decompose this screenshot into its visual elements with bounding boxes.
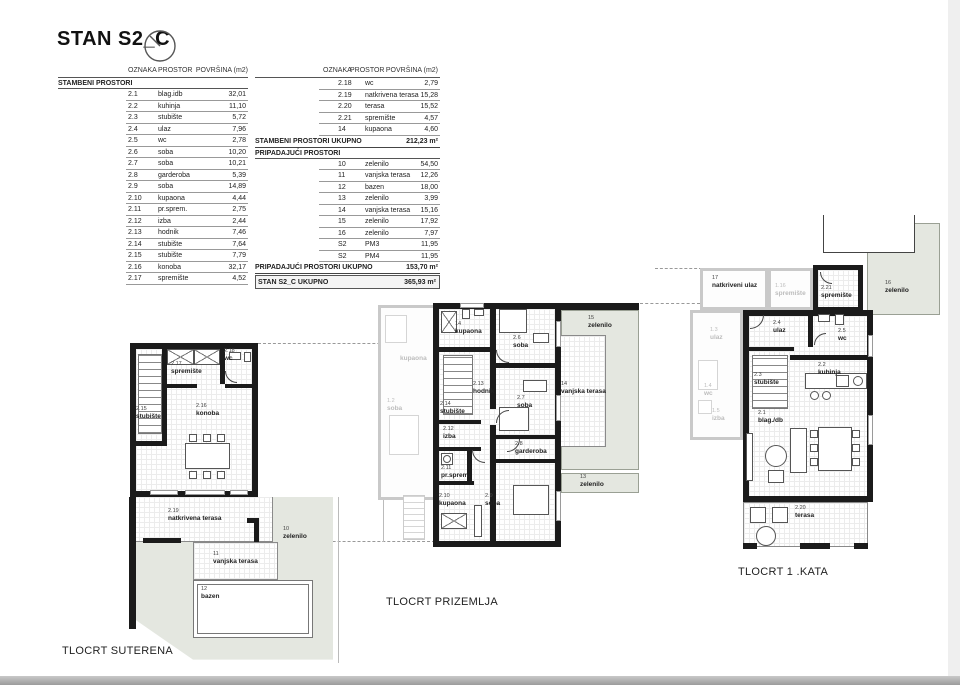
col-povrsina: POVRŠINA (m2) xyxy=(196,67,248,74)
bed xyxy=(499,309,527,333)
room-label-faded-ulaz: 1.3 ulaz xyxy=(710,327,723,343)
cell-povrsina: 5,72 xyxy=(232,112,246,124)
exterior-wall xyxy=(129,497,136,629)
cell-oznaka: S2 xyxy=(338,251,347,263)
room-label-blagdb: 2.1 blag./db xyxy=(758,410,783,426)
cell-oznaka: 2.17 xyxy=(128,273,142,285)
window xyxy=(868,415,873,445)
table-row: 2.1blag.idb32,01 xyxy=(126,89,248,101)
cell-prostor: PM4 xyxy=(365,251,379,263)
cell-prostor: PM3 xyxy=(365,239,379,251)
room-label-faded-soba: 1.2 soba xyxy=(387,398,402,414)
cell-povrsina: 4,60 xyxy=(424,124,438,136)
table-row: 14vanjska terasa15,16 xyxy=(319,205,440,217)
table-row: 2.18wc2,79 xyxy=(319,78,440,90)
room-label-soba-26: 2.6 soba xyxy=(513,335,528,351)
floorplan-sheet: STAN S2_C OZNAKA PROSTOR POVRŠINA (m2) S… xyxy=(0,0,960,685)
room-label-stubiste: 2.14 stubište xyxy=(440,401,465,417)
cell-oznaka: 2.13 xyxy=(128,227,142,239)
cell-prostor: zelenilo xyxy=(365,193,389,205)
faded-fixture xyxy=(385,315,407,343)
pripadajuci-total-row: PRIPADAJUĆI PROSTORI UKUPNO 153,70 m² xyxy=(255,262,440,274)
table-row: S2PM411,95 xyxy=(319,251,440,263)
cell-prostor: blag.idb xyxy=(158,89,183,101)
floor-plan-prizemlja: 14 kupaona 2.6 soba 2.13 hodnik 2.14 stu… xyxy=(375,295,645,605)
floor-plan-suterena: 2.15 stubište 2.17 spremište 2.18 wc 2.1… xyxy=(125,340,350,672)
faded-staircase xyxy=(403,495,425,540)
col-prostor: PROSTOR xyxy=(158,67,193,74)
cell-prostor: garderoba xyxy=(158,170,190,182)
interior-wall xyxy=(167,384,197,388)
cell-prostor: kupaona xyxy=(158,193,185,205)
interior-wall xyxy=(496,459,555,463)
chair xyxy=(852,458,860,466)
cell-povrsina: 2,79 xyxy=(424,78,438,90)
terrace-table xyxy=(772,507,788,523)
room-label-faded-kupaona: kupaona xyxy=(400,355,427,363)
table-row: 2.11pr.sprem.2,75 xyxy=(126,204,248,216)
grand-total-value: 365,93 m² xyxy=(404,276,436,289)
cell-oznaka: 2.9 xyxy=(128,181,138,193)
cell-oznaka: 12 xyxy=(338,182,346,194)
col-prostor: PROSTOR xyxy=(350,67,385,74)
cell-povrsina: 32,17 xyxy=(228,262,246,274)
cell-oznaka: 2.20 xyxy=(338,101,352,113)
col-povrsina: POVRŠINA (m2) xyxy=(386,67,438,74)
cell-povrsina: 10,21 xyxy=(228,158,246,170)
cell-oznaka: 2.21 xyxy=(338,113,352,125)
cell-oznaka: 14 xyxy=(338,205,346,217)
interior-wall xyxy=(808,315,813,347)
cell-povrsina: 5,39 xyxy=(232,170,246,182)
table-header: OZNAKA PROSTOR POVRŠINA (m2) xyxy=(58,64,248,78)
cell-oznaka: 2.4 xyxy=(128,124,138,136)
cell-povrsina: 54,50 xyxy=(420,159,438,171)
toilet xyxy=(835,314,844,325)
room-table-right: OZNAKA PROSTOR POVRŠINA (m2) 2.18wc2,792… xyxy=(255,64,440,289)
cell-prostor: vanjska terasa xyxy=(365,170,410,182)
window xyxy=(230,490,248,495)
cell-prostor: konoba xyxy=(158,262,181,274)
cell-povrsina: 7,97 xyxy=(424,228,438,240)
stool xyxy=(822,391,831,400)
staircase xyxy=(138,354,162,434)
room-label-kupaona-210: 2.10 kupaona xyxy=(439,493,466,509)
room-label-bazen: 12 bazen xyxy=(201,586,219,602)
cell-povrsina: 12,26 xyxy=(420,170,438,182)
room-label-wc: 2.18 wc xyxy=(224,348,235,364)
faded-fixture xyxy=(698,400,712,414)
table-row: 2.21spremište4,57 xyxy=(319,113,440,125)
sink xyxy=(818,314,830,322)
plan-title-suterena: TLOCRT SUTERENA xyxy=(62,645,173,657)
cell-prostor: pr.sprem. xyxy=(158,204,187,216)
interior-wall xyxy=(496,435,555,439)
chair xyxy=(189,434,197,442)
total-label: PRIPADAJUĆI PROSTORI UKUPNO xyxy=(255,264,373,271)
cell-oznaka: 2.1 xyxy=(128,89,138,101)
coffee-table xyxy=(765,445,787,467)
plan-title-prizemlja: TLOCRT PRIZEMLJA xyxy=(386,596,498,608)
room-label-soba-29: 2.9 soba xyxy=(485,493,500,509)
cell-prostor: spremište xyxy=(365,113,395,125)
interior-wall xyxy=(790,355,870,360)
sofa xyxy=(790,428,807,473)
interior-wall xyxy=(225,384,252,388)
window xyxy=(150,490,178,495)
cell-povrsina: 18,00 xyxy=(420,182,438,194)
grand-total-label: STAN S2_C UKUPNO xyxy=(258,279,328,286)
cell-povrsina: 4,44 xyxy=(232,193,246,205)
room-label-faded-izba: 1.5 izba xyxy=(712,408,725,424)
table-row: 2.3stubište5,72 xyxy=(126,112,248,124)
cell-prostor: stubište xyxy=(158,112,182,124)
cell-oznaka: 2.16 xyxy=(128,262,142,274)
cell-povrsina: 15,16 xyxy=(420,205,438,217)
room-label-konoba: 2.16 konoba xyxy=(196,403,219,419)
table-row: 2.10kupaona4,44 xyxy=(126,193,248,205)
window xyxy=(185,490,225,495)
terrace-table xyxy=(750,507,766,523)
cell-povrsina: 2,75 xyxy=(232,204,246,216)
cell-oznaka: 2.19 xyxy=(338,90,352,102)
cell-oznaka: 2.5 xyxy=(128,135,138,147)
right-table-rows-bottom: 10zelenilo54,5011vanjska terasa12,2612ba… xyxy=(255,159,440,263)
cell-oznaka: 2.12 xyxy=(128,216,142,228)
cell-oznaka: 2.8 xyxy=(128,170,138,182)
cell-prostor: stubište xyxy=(158,250,182,262)
table-row: 2.5wc2,78 xyxy=(126,135,248,147)
sink xyxy=(474,309,484,316)
table-row: 2.2kuhinja11,10 xyxy=(126,101,248,113)
room-label-stubiste: 2.15 stubište xyxy=(136,406,161,422)
cell-prostor: soba xyxy=(158,147,173,159)
chair xyxy=(852,430,860,438)
cell-prostor: soba xyxy=(158,181,173,193)
bathtub xyxy=(441,513,467,529)
table-row: 2.14stubište7,64 xyxy=(126,239,248,251)
toilet xyxy=(462,309,470,319)
section-pripadajuci: PRIPADAJUĆI PROSTORI xyxy=(255,148,440,159)
interior-wall xyxy=(439,420,481,424)
table-row: 2.9soba14,89 xyxy=(126,181,248,193)
cell-povrsina: 15,28 xyxy=(420,90,438,102)
window xyxy=(556,491,561,521)
cell-oznaka: 2.14 xyxy=(128,239,142,251)
cell-oznaka: 11 xyxy=(338,170,345,182)
cell-prostor: izba xyxy=(158,216,171,228)
cell-prostor: zelenilo xyxy=(365,216,389,228)
left-table-rows: 2.1blag.idb32,012.2kuhinja11,102.3stubiš… xyxy=(58,89,248,285)
cell-prostor: wc xyxy=(365,78,374,90)
terrace-wall xyxy=(254,518,259,542)
room-label-spremiste: 2.17 spremište xyxy=(171,361,202,377)
table-row: 2.19natkrivena terasa15,28 xyxy=(319,90,440,102)
chair xyxy=(203,471,211,479)
cell-oznaka: 2.15 xyxy=(128,250,142,262)
room-label-faded-spremiste: 1.16 spremište xyxy=(775,283,806,299)
dining-table xyxy=(818,427,852,471)
table-row: 13zelenilo3,99 xyxy=(319,193,440,205)
cell-oznaka: S2 xyxy=(338,239,347,251)
cell-povrsina: 10,20 xyxy=(228,147,246,159)
room-label-zelenilo-16: 16 zelenilo xyxy=(885,280,909,296)
interior-wall xyxy=(136,441,167,446)
cell-prostor: hodnik xyxy=(158,227,179,239)
cell-oznaka: 13 xyxy=(338,193,346,205)
cell-prostor: terasa xyxy=(365,101,384,113)
room-label-kupaona-14: 14 kupaona xyxy=(455,321,482,337)
section-stambeni: STAMBENI PROSTORI xyxy=(58,78,248,89)
cell-oznaka: 2.7 xyxy=(128,158,138,170)
table-row: 16zelenilo7,97 xyxy=(319,228,440,240)
cell-povrsina: 32,01 xyxy=(228,89,246,101)
table-row: 2.12izba2,44 xyxy=(126,216,248,228)
chair xyxy=(189,471,197,479)
desk xyxy=(533,333,549,343)
col-oznaka: OZNAKA xyxy=(128,67,157,74)
table-row: 2.16konoba32,17 xyxy=(126,262,248,274)
stool xyxy=(810,391,819,400)
table-row: 15zelenilo17,92 xyxy=(319,216,440,228)
room-label-vanjska-14: 14 vanjska terasa xyxy=(561,381,606,397)
table-row: 2.13hodnik7,46 xyxy=(126,227,248,239)
cell-prostor: zelenilo xyxy=(365,159,389,171)
room-label-natkriveni-ulaz: 17 natkriveni ulaz xyxy=(712,275,757,291)
exterior-wall xyxy=(561,303,639,310)
cell-prostor: bazen xyxy=(365,182,384,194)
washing-machine-drum xyxy=(443,455,451,463)
plan-title-kata: TLOCRT 1 .KATA xyxy=(738,566,828,578)
cell-povrsina: 2,44 xyxy=(232,216,246,228)
room-label-soba-27: 2.7 soba xyxy=(517,395,532,411)
interior-wall xyxy=(496,363,555,368)
cell-povrsina: 7,64 xyxy=(232,239,246,251)
cell-povrsina: 7,96 xyxy=(232,124,246,136)
cell-oznaka: 2.6 xyxy=(128,147,138,159)
terrace-pier xyxy=(743,543,757,549)
cell-prostor: vanjska terasa xyxy=(365,205,410,217)
table-row: 2.7soba10,21 xyxy=(126,158,248,170)
kitchen-sink xyxy=(853,376,863,386)
total-label: STAMBENI PROSTORI UKUPNO xyxy=(255,138,362,145)
cell-prostor: spremište xyxy=(158,273,188,285)
interior-wall xyxy=(490,425,496,541)
room-table-left: OZNAKA PROSTOR POVRŠINA (m2) STAMBENI PR… xyxy=(58,64,248,285)
cell-oznaka: 10 xyxy=(338,159,346,171)
cell-prostor: wc xyxy=(158,135,167,147)
cell-oznaka: 2.3 xyxy=(128,112,138,124)
room-label-hodnik: 2.13 hodnik xyxy=(473,381,494,397)
tv-sideboard xyxy=(746,433,753,481)
bed xyxy=(513,485,549,515)
table-row: 2.8garderoba5,39 xyxy=(126,170,248,182)
page-edge-right xyxy=(948,0,960,676)
window xyxy=(556,395,561,421)
room-label-zelenilo-15: 15 zelenilo xyxy=(588,315,612,331)
terrace-pier xyxy=(800,543,830,549)
cell-oznaka: 16 xyxy=(338,228,346,240)
cell-oznaka: 2.2 xyxy=(128,101,138,113)
cell-prostor: kupaona xyxy=(365,124,392,136)
cell-oznaka: 14 xyxy=(338,124,346,136)
cell-povrsina: 11,95 xyxy=(421,251,438,263)
neighbour-building-outline xyxy=(823,215,915,253)
stambeni-total-row: STAMBENI PROSTORI UKUPNO 212,23 m² xyxy=(255,136,440,148)
room-label-wc: 2.5 wc xyxy=(838,328,847,344)
chair xyxy=(810,444,818,452)
room-label-ulaz: 2.4 ulaz xyxy=(773,320,786,336)
table-row: 12bazen18,00 xyxy=(319,182,440,194)
cell-povrsina: 14,89 xyxy=(228,181,246,193)
chair xyxy=(203,434,211,442)
total-value: 153,70 m² xyxy=(406,262,438,274)
faded-fixture xyxy=(389,415,419,455)
right-table-rows-top: 2.18wc2,792.19natkrivena terasa15,282.20… xyxy=(255,78,440,136)
table-row: 2.4ulaz7,96 xyxy=(126,124,248,136)
room-label-spremiste-221: 2.21 spremište xyxy=(821,285,852,301)
cell-prostor: kuhinja xyxy=(158,101,180,113)
room-label-izba: 2.12 izba xyxy=(443,426,456,442)
armchair xyxy=(768,470,784,483)
col-oznaka: OZNAKA xyxy=(323,67,352,74)
cell-oznaka: 2.18 xyxy=(338,78,352,90)
table-row: 2.20terasa15,52 xyxy=(319,101,440,113)
room-label-garderoba: 2.8 garderoba xyxy=(515,441,547,457)
room-label-natkrivena-terasa: 2.19 natkrivena terasa xyxy=(168,508,221,524)
floor-plan-kata: 17 natkriveni ulaz 1.16 spremište 2.21 s… xyxy=(690,215,950,565)
cell-prostor: soba xyxy=(158,158,173,170)
table-row: S2PM311,95 xyxy=(319,239,440,251)
terrace-wall xyxy=(143,538,181,543)
cell-povrsina: 4,52 xyxy=(232,273,246,285)
room-label-prsprem: 2.11 pr.sprem. xyxy=(441,465,470,481)
chair xyxy=(810,458,818,466)
dining-table xyxy=(185,443,230,469)
room-label-faded-wc: 1.4 wc xyxy=(704,383,713,399)
total-value: 212,23 m² xyxy=(406,136,438,148)
cell-povrsina: 7,79 xyxy=(232,250,246,262)
cell-povrsina: 11,95 xyxy=(421,239,438,251)
table-row: 2.17spremište4,52 xyxy=(126,273,248,285)
chair xyxy=(217,434,225,442)
closet xyxy=(474,505,482,537)
cell-povrsina: 15,52 xyxy=(420,101,438,113)
page-edge-bottom xyxy=(0,676,960,685)
terrace-pier xyxy=(854,543,868,549)
cell-prostor: zelenilo xyxy=(365,228,389,240)
table-header: OZNAKA PROSTOR POVRŠINA (m2) xyxy=(255,64,440,78)
chair xyxy=(810,430,818,438)
table-row: 10zelenilo54,50 xyxy=(319,159,440,171)
cell-prostor: stubište xyxy=(158,239,182,251)
chair xyxy=(217,471,225,479)
interior-wall xyxy=(749,347,794,351)
cell-prostor: ulaz xyxy=(158,124,171,136)
room-label-terasa: 2.20 terasa xyxy=(795,505,814,521)
table-row: 2.15stubište7,79 xyxy=(126,250,248,262)
window xyxy=(556,321,561,347)
cell-povrsina: 11,10 xyxy=(229,101,246,113)
cell-povrsina: 2,78 xyxy=(232,135,246,147)
cell-prostor: natkrivena terasa xyxy=(365,90,419,102)
room-label-stubiste: 2.3 stubište xyxy=(754,372,779,388)
room-label-zelenilo-13: 13 zelenilo xyxy=(580,474,604,490)
room-label-kuhinja: 2.2 kuhinja xyxy=(818,362,841,378)
cell-oznaka: 2.10 xyxy=(128,193,142,205)
cell-povrsina: 17,92 xyxy=(420,216,438,228)
room-label-vanjska-terasa: 11 vanjska terasa xyxy=(213,551,258,567)
north-indicator-icon xyxy=(140,26,180,66)
chair xyxy=(852,444,860,452)
table-row: 2.6soba10,20 xyxy=(126,147,248,159)
cell-oznaka: 15 xyxy=(338,216,346,228)
room-label-zelenilo: 10 zelenilo xyxy=(283,526,307,542)
cell-povrsina: 3,99 xyxy=(424,193,438,205)
sink xyxy=(244,352,251,362)
table-row: 11vanjska terasa12,26 xyxy=(319,170,440,182)
interior-wall xyxy=(439,347,490,352)
window xyxy=(460,303,484,308)
cell-oznaka: 2.11 xyxy=(128,204,141,216)
table-row: 14kupaona4,60 xyxy=(319,124,440,136)
window xyxy=(868,335,873,357)
grand-total-row: STAN S2_C UKUPNO 365,93 m² xyxy=(255,275,440,289)
desk xyxy=(523,380,547,392)
cell-povrsina: 4,57 xyxy=(424,113,438,125)
terrace-chair xyxy=(756,526,776,546)
cell-povrsina: 7,46 xyxy=(232,227,246,239)
